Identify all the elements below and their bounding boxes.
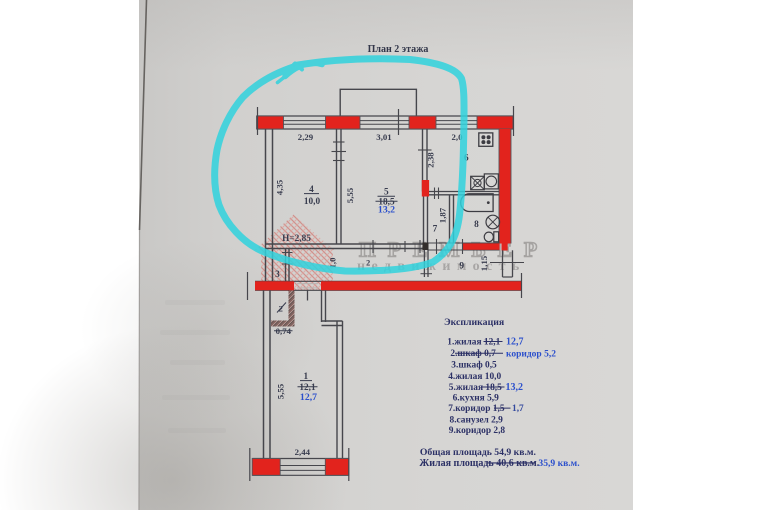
svg-text:3: 3 bbox=[275, 270, 280, 280]
svg-text:12,7: 12,7 bbox=[506, 337, 524, 348]
svg-text:8.санузел 2,9: 8.санузел 2,9 bbox=[450, 415, 504, 425]
svg-text:Н=2,85: Н=2,85 bbox=[282, 234, 311, 244]
svg-text:5,55: 5,55 bbox=[345, 187, 355, 203]
svg-text:1.жилая 12,1: 1.жилая 12,1 bbox=[447, 338, 500, 348]
svg-text:8: 8 bbox=[474, 220, 479, 230]
svg-text:13,2: 13,2 bbox=[506, 382, 524, 393]
svg-text:10,0: 10,0 bbox=[304, 197, 321, 207]
svg-text:5.жилая 18,5: 5.жилая 18,5 bbox=[449, 383, 502, 393]
svg-text:2: 2 bbox=[366, 258, 370, 267]
svg-text:2,44: 2,44 bbox=[295, 447, 311, 457]
svg-text:1,15: 1,15 bbox=[479, 255, 489, 271]
svg-text:Экспликация: Экспликация bbox=[444, 317, 505, 328]
svg-text:коридор 5,2: коридор 5,2 bbox=[506, 350, 556, 360]
svg-text:6.кухня 5,9: 6.кухня 5,9 bbox=[453, 393, 500, 403]
svg-text:1,7: 1,7 bbox=[512, 404, 524, 414]
svg-text:1,87: 1,87 bbox=[438, 207, 448, 223]
svg-text:4.жилая 10,0: 4.жилая 10,0 bbox=[448, 372, 501, 382]
svg-text:План 2 этажа: План 2 этажа bbox=[368, 44, 429, 55]
svg-text:2,29: 2,29 bbox=[298, 132, 314, 142]
svg-text:5,55: 5,55 bbox=[276, 383, 286, 399]
svg-text:9.коридор 2,8: 9.коридор 2,8 bbox=[449, 426, 506, 436]
svg-text:Общая площадь 54,9 кв.м.: Общая площадь 54,9 кв.м. bbox=[420, 447, 536, 458]
svg-text:9: 9 bbox=[459, 261, 464, 271]
svg-text:7: 7 bbox=[433, 225, 438, 235]
svg-text:7.коридор 1,5: 7.коридор 1,5 bbox=[448, 404, 505, 414]
svg-text:4,35: 4,35 bbox=[274, 179, 284, 195]
svg-text:3.шкаф 0,5: 3.шкаф 0,5 bbox=[451, 360, 497, 371]
svg-text:12,7: 12,7 bbox=[300, 392, 317, 403]
svg-text:3,01: 3,01 bbox=[376, 132, 391, 142]
svg-text:2,38: 2,38 bbox=[426, 152, 436, 168]
svg-text:13,2: 13,2 bbox=[378, 205, 395, 216]
svg-text:35,9 кв.м.: 35,9 кв.м. bbox=[538, 458, 579, 469]
